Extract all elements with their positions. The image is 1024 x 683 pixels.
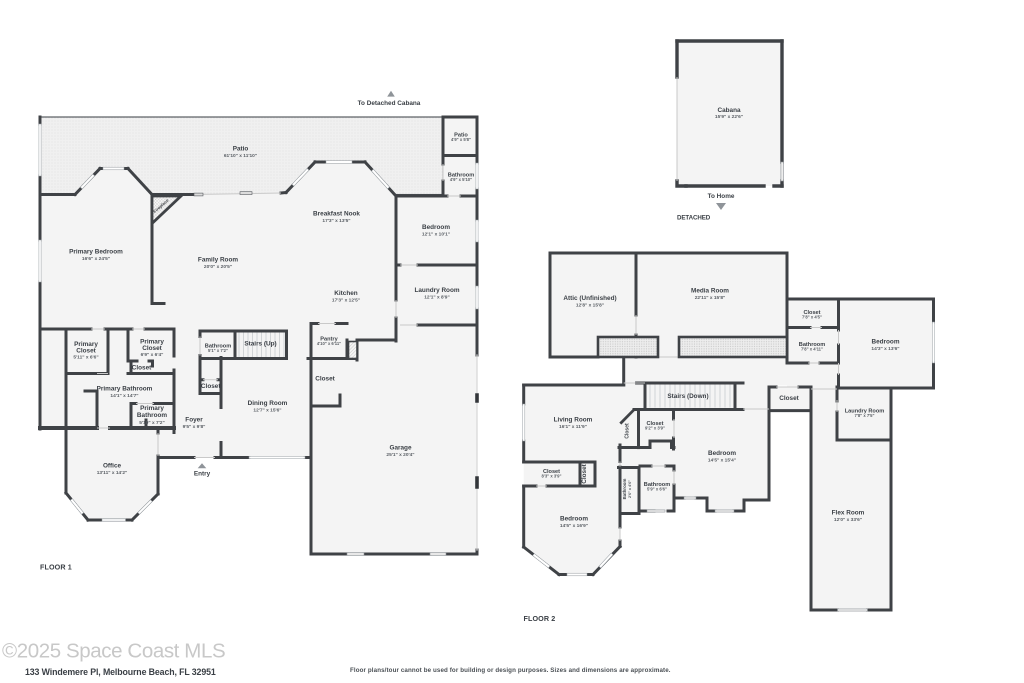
svg-text:2'6" x 4'6": 2'6" x 4'6" bbox=[628, 480, 632, 498]
svg-text:Patio: Patio bbox=[233, 146, 249, 153]
svg-text:22'11" x 15'8": 22'11" x 15'8" bbox=[695, 295, 726, 301]
svg-text:14'5" x 16'9": 14'5" x 16'9" bbox=[560, 523, 588, 529]
svg-text:Flex Room: Flex Room bbox=[832, 510, 865, 517]
svg-text:9'5" x 9'8": 9'5" x 9'8" bbox=[183, 424, 206, 430]
svg-text:14'5" x 15'4": 14'5" x 15'4" bbox=[708, 458, 736, 464]
svg-text:12'8" x 15'8": 12'8" x 15'8" bbox=[576, 303, 604, 309]
svg-text:5'11" x 6'6": 5'11" x 6'6" bbox=[73, 355, 98, 361]
svg-text:Bedroom: Bedroom bbox=[871, 339, 899, 346]
svg-text:Office: Office bbox=[103, 463, 122, 470]
svg-text:Cabana: Cabana bbox=[717, 107, 741, 114]
svg-text:Dining Room: Dining Room bbox=[248, 400, 288, 407]
svg-text:Foyer: Foyer bbox=[185, 417, 203, 424]
svg-text:Living Room: Living Room bbox=[554, 417, 593, 424]
svg-text:©2025 Space Coast MLS: ©2025 Space Coast MLS bbox=[2, 640, 225, 663]
svg-text:Primary Bathroom: Primary Bathroom bbox=[97, 386, 153, 393]
svg-text:To Home: To Home bbox=[708, 193, 735, 200]
svg-text:15'9" x 22'6": 15'9" x 22'6" bbox=[715, 114, 743, 120]
svg-text:Closet: Closet bbox=[142, 345, 162, 352]
svg-text:17'3" x 12'5": 17'3" x 12'5" bbox=[332, 298, 360, 304]
svg-text:FLOOR 2: FLOOR 2 bbox=[524, 614, 556, 623]
svg-text:Floor plans/tour cannot be use: Floor plans/tour cannot be used for buil… bbox=[350, 667, 671, 674]
svg-text:12'0" x 33'6": 12'0" x 33'6" bbox=[834, 517, 862, 523]
svg-text:To Detached Cabana: To Detached Cabana bbox=[358, 100, 421, 107]
svg-text:Attic (Unfinished): Attic (Unfinished) bbox=[563, 295, 616, 302]
svg-text:12'1" x 8'9": 12'1" x 8'9" bbox=[424, 295, 450, 301]
svg-text:20'0" x 20'5": 20'0" x 20'5" bbox=[204, 264, 232, 270]
svg-text:4'9" x 5'10": 4'9" x 5'10" bbox=[450, 177, 472, 182]
svg-text:Closet: Closet bbox=[625, 423, 631, 439]
svg-text:7'8" x 4'11": 7'8" x 4'11" bbox=[801, 347, 823, 352]
svg-text:25'1" x 20'4": 25'1" x 20'4" bbox=[386, 452, 414, 458]
svg-text:16'6" x 24'5": 16'6" x 24'5" bbox=[82, 256, 110, 262]
svg-text:Bathroom: Bathroom bbox=[137, 412, 167, 419]
svg-text:Stairs (Down): Stairs (Down) bbox=[667, 393, 708, 400]
svg-text:17'3" x 13'5": 17'3" x 13'5" bbox=[322, 218, 350, 224]
svg-text:Laundry Room: Laundry Room bbox=[414, 287, 459, 294]
svg-text:14'1" x 14'7": 14'1" x 14'7" bbox=[110, 393, 138, 399]
svg-text:6'9" x 6'4": 6'9" x 6'4" bbox=[141, 352, 164, 358]
svg-text:Closet: Closet bbox=[779, 395, 799, 402]
svg-text:16'1" x 11'9": 16'1" x 11'9" bbox=[559, 424, 587, 430]
svg-text:FLOOR 1: FLOOR 1 bbox=[40, 563, 72, 572]
svg-text:Primary: Primary bbox=[140, 405, 164, 412]
svg-text:4'10" x 6'11": 4'10" x 6'11" bbox=[317, 341, 341, 346]
svg-text:Closet: Closet bbox=[132, 365, 152, 372]
svg-text:Bedroom: Bedroom bbox=[560, 516, 588, 523]
svg-text:Primary Bedroom: Primary Bedroom bbox=[69, 249, 123, 256]
svg-text:Closet: Closet bbox=[76, 348, 96, 355]
svg-text:61'10" x 11'10": 61'10" x 11'10" bbox=[224, 153, 257, 159]
svg-text:133 Windemere Pl, Melbourne Be: 133 Windemere Pl, Melbourne Beach, FL 32… bbox=[25, 667, 216, 677]
svg-text:Bedroom: Bedroom bbox=[708, 450, 736, 457]
svg-text:Breakfast Nook: Breakfast Nook bbox=[313, 211, 360, 218]
svg-text:14'3" x 13'6": 14'3" x 13'6" bbox=[871, 346, 899, 352]
svg-text:12'1" x 10'1": 12'1" x 10'1" bbox=[422, 232, 450, 238]
svg-text:8'3" x 3'9": 8'3" x 3'9" bbox=[542, 474, 562, 479]
svg-text:13'11" x 14'2": 13'11" x 14'2" bbox=[97, 470, 128, 476]
svg-text:DETACHED: DETACHED bbox=[677, 215, 711, 222]
svg-text:Kitchen: Kitchen bbox=[334, 290, 358, 297]
svg-text:7'8" x 4'5": 7'8" x 4'5" bbox=[802, 315, 822, 320]
svg-text:Closet: Closet bbox=[315, 376, 335, 383]
svg-text:Family Room: Family Room bbox=[198, 257, 238, 264]
svg-text:Bathroom: Bathroom bbox=[622, 479, 627, 500]
svg-text:Entry: Entry bbox=[194, 471, 211, 478]
svg-text:7'8" x 7'5": 7'8" x 7'5" bbox=[855, 413, 875, 418]
svg-text:Bedroom: Bedroom bbox=[422, 224, 450, 231]
svg-text:Closet: Closet bbox=[581, 463, 588, 483]
svg-text:Closet: Closet bbox=[201, 383, 221, 390]
svg-text:5'9" x 6'6": 5'9" x 6'6" bbox=[647, 487, 667, 492]
svg-text:4'9" x 5'8": 4'9" x 5'8" bbox=[451, 137, 471, 142]
svg-text:9'2" x 3'9": 9'2" x 3'9" bbox=[645, 426, 665, 431]
svg-text:Garage: Garage bbox=[389, 445, 411, 452]
svg-text:Stairs (Up): Stairs (Up) bbox=[244, 341, 276, 348]
svg-text:12'7" x 15'6": 12'7" x 15'6" bbox=[253, 408, 281, 414]
svg-text:5'1" x 7'2": 5'1" x 7'2" bbox=[208, 348, 228, 353]
svg-text:Media Room: Media Room bbox=[691, 288, 729, 295]
svg-text:5'10" x 7'2": 5'10" x 7'2" bbox=[139, 420, 165, 426]
